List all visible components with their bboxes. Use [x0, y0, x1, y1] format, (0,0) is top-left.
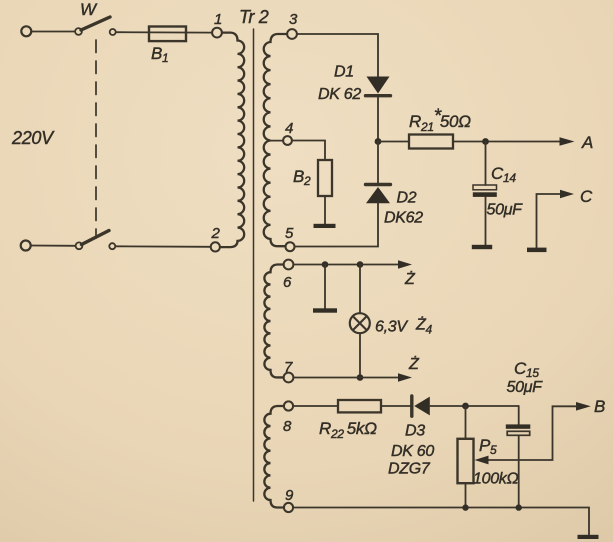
svg-text:D1: D1	[334, 64, 354, 81]
svg-text:DK 60: DK 60	[391, 443, 434, 460]
svg-text:2: 2	[211, 225, 221, 242]
svg-text:5: 5	[285, 225, 294, 242]
svg-text:6,3V: 6,3V	[375, 319, 408, 336]
svg-text:DK62: DK62	[384, 210, 423, 227]
svg-text:3: 3	[289, 11, 298, 28]
svg-text:Ż: Ż	[404, 269, 416, 288]
svg-text:8: 8	[283, 418, 292, 435]
svg-text:Tr 2: Tr 2	[239, 7, 269, 27]
svg-text:7: 7	[284, 359, 293, 376]
svg-text:DK 62: DK 62	[318, 86, 361, 103]
svg-text:50μF: 50μF	[487, 202, 524, 219]
svg-text:C: C	[580, 187, 593, 206]
svg-text:100kΩ: 100kΩ	[473, 471, 518, 488]
svg-text:DZG7: DZG7	[388, 461, 431, 478]
svg-text:D2: D2	[397, 190, 417, 207]
svg-text:50μF: 50μF	[507, 379, 544, 396]
svg-text:A: A	[581, 133, 593, 152]
svg-text:D3: D3	[405, 423, 425, 440]
svg-text:W: W	[80, 0, 98, 19]
svg-text:9: 9	[285, 487, 294, 504]
svg-text:1: 1	[214, 11, 222, 28]
svg-text:R225kΩ: R225kΩ	[319, 419, 377, 441]
svg-text:B: B	[594, 397, 605, 416]
svg-text:220V: 220V	[11, 128, 55, 148]
svg-text:4: 4	[285, 120, 293, 137]
svg-text:6: 6	[283, 274, 292, 291]
svg-text:Ż: Ż	[408, 354, 420, 373]
